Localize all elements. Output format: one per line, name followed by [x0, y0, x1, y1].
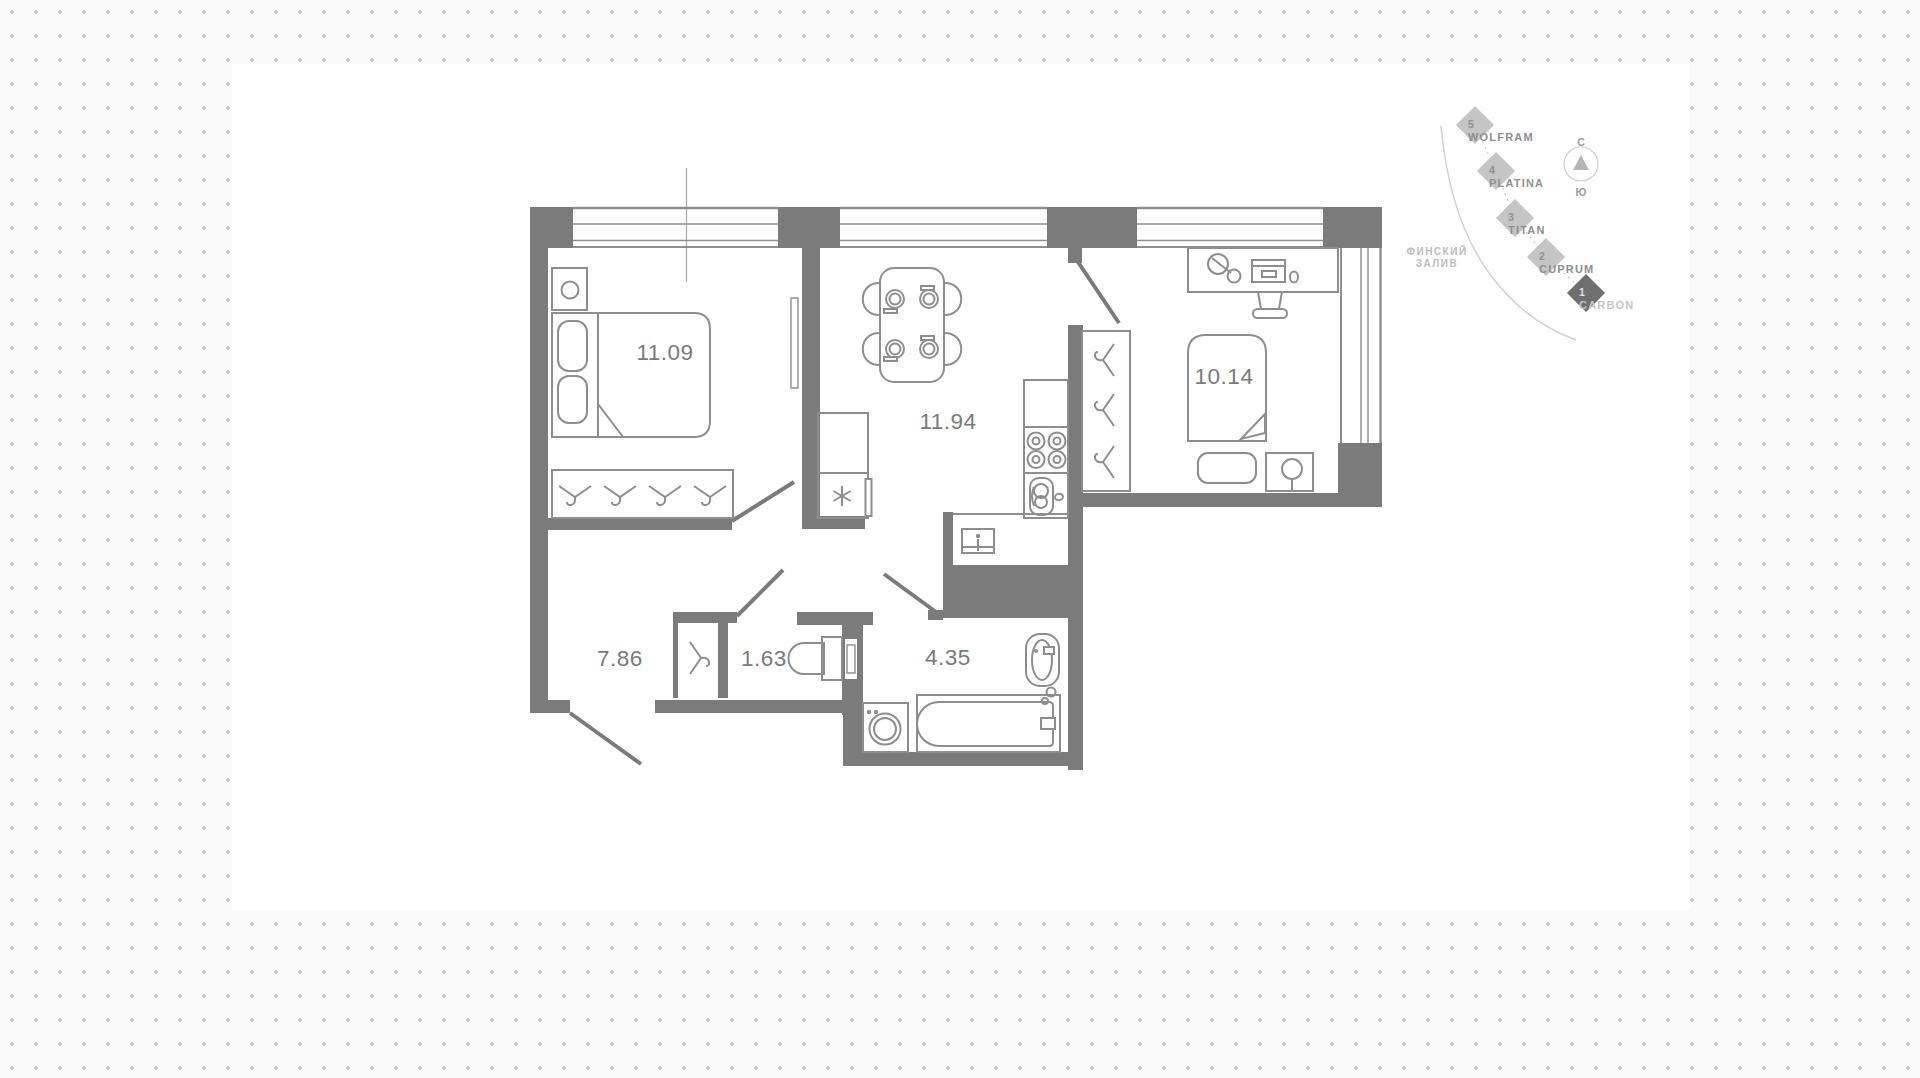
kitchen-sink	[1030, 478, 1064, 515]
compass-south-label: Ю	[1576, 186, 1587, 198]
windows	[573, 208, 1381, 443]
blanket-fold	[598, 404, 623, 437]
bedroom-2-door	[1076, 259, 1119, 323]
washing-machine	[863, 703, 908, 752]
building-marker-carbon-active[interactable]: 1 CARBON	[1567, 274, 1635, 312]
floorplan-canvas: 11.09 11.94 10.14 7.86 1.63 4.35 ФИНСКИЙ…	[0, 0, 1920, 1078]
room-label-bedroom-1: 11.09	[636, 340, 693, 365]
fridge	[818, 473, 872, 518]
building-name: TITAN	[1508, 224, 1546, 236]
building-name: CUPRUM	[1539, 263, 1594, 275]
room-label-bathroom: 4.35	[925, 645, 971, 670]
wall-niche	[845, 639, 857, 679]
water-label-line1: ФИНСКИЙ	[1406, 245, 1467, 257]
toilet	[789, 637, 843, 680]
double-bed	[552, 313, 710, 437]
building-number: 5	[1468, 118, 1474, 130]
building-name: PLATINA	[1489, 177, 1544, 189]
building-number: 1	[1579, 286, 1585, 298]
room-label-closet: 1.63	[741, 646, 787, 671]
washbasin	[1026, 634, 1059, 704]
building-name: WOLFRAM	[1468, 131, 1534, 143]
compass-north-label: С	[1577, 136, 1585, 148]
building-number: 2	[1539, 250, 1545, 262]
entrance-door	[570, 713, 641, 764]
closet-hanger	[690, 642, 709, 674]
bathtub	[917, 695, 1060, 752]
laptop-icon	[1252, 260, 1285, 282]
bench	[1198, 453, 1256, 483]
bedroom-1-furniture	[552, 268, 798, 518]
kitchen-cabinet	[818, 413, 868, 473]
desk	[1188, 248, 1338, 292]
page-background: { "plan": { "rooms": [ {"name": "bedroom…	[0, 0, 1920, 1078]
water-label-line2: ЗАЛИВ	[1416, 258, 1459, 269]
window-kitchen	[840, 208, 1047, 247]
building-marker-wolfram[interactable]: 5 WOLFRAM	[1456, 106, 1534, 144]
nightstand	[552, 268, 587, 310]
building-number: 3	[1508, 211, 1514, 223]
window-bedroom-2-top	[1137, 208, 1323, 247]
window-bedroom-2-right	[1341, 248, 1381, 443]
snowflake-icon	[833, 486, 850, 506]
minimap: ФИНСКИЙ ЗАЛИВ 5 WOLFRAM 4 PLATINA 3 TITA…	[1406, 106, 1634, 340]
wardrobe-bedroom-2	[1082, 331, 1130, 491]
building-marker-cuprum[interactable]: 2 CUPRUM	[1527, 238, 1595, 276]
mouse-icon	[1290, 272, 1298, 283]
window-bedroom-1	[573, 208, 778, 247]
floorplan: 11.09 11.94 10.14 7.86 1.63 4.35	[530, 168, 1382, 770]
closet-wc-door	[737, 570, 783, 616]
utility-panel	[953, 514, 1068, 553]
room-label-hallway: 7.86	[597, 646, 643, 671]
building-marker-platina[interactable]: 4 PLATINA	[1477, 152, 1544, 190]
desk-chair	[1253, 292, 1287, 318]
stove	[1028, 433, 1066, 469]
nightstand-2	[1266, 453, 1313, 491]
building-marker-titan[interactable]: 3 TITAN	[1496, 199, 1546, 237]
bathroom-door	[884, 574, 936, 612]
room-label-kitchen: 11.94	[919, 409, 976, 434]
building-number: 4	[1489, 164, 1495, 176]
compass: С Ю	[1564, 136, 1598, 198]
bedroom-1-door	[732, 482, 794, 521]
dining-table	[880, 268, 944, 382]
mirror	[791, 298, 798, 388]
blanket-fold	[1241, 414, 1265, 439]
room-label-bedroom-2: 10.14	[1195, 364, 1254, 389]
building-name: CARBON	[1579, 299, 1634, 311]
wardrobe-bedroom-1	[552, 470, 733, 518]
desk-lamp-icon	[1208, 254, 1241, 283]
